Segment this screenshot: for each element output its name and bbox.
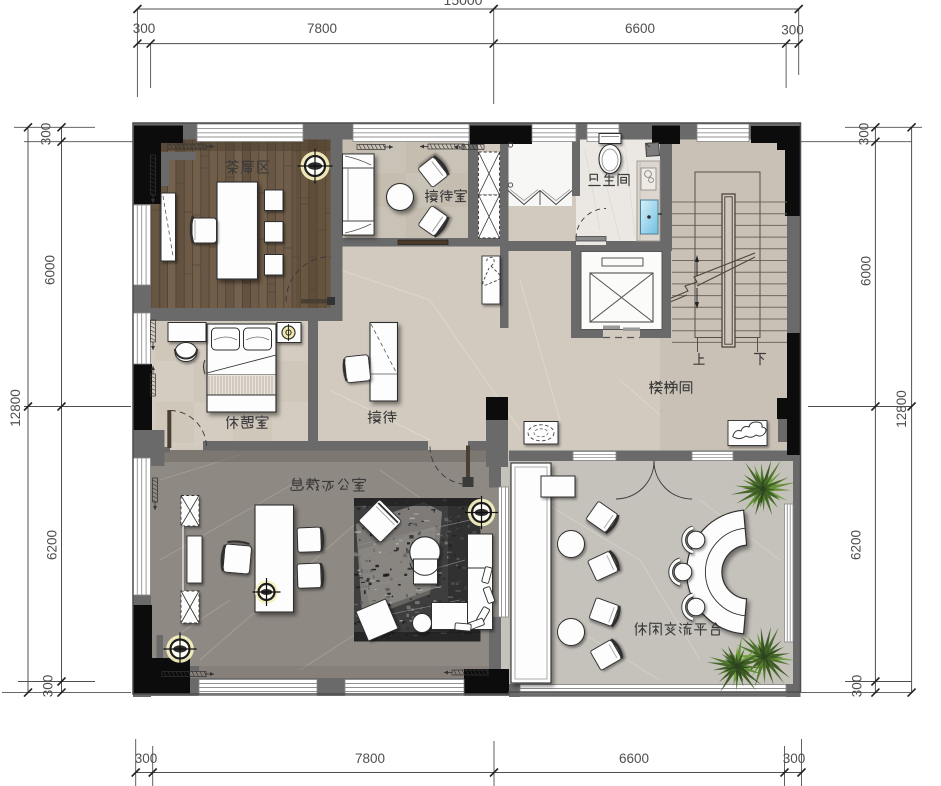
svg-text:6600: 6600 bbox=[619, 751, 649, 766]
svg-text:7800: 7800 bbox=[307, 21, 337, 36]
svg-text:6200: 6200 bbox=[849, 530, 864, 560]
svg-text:6200: 6200 bbox=[45, 530, 60, 560]
svg-text:6000: 6000 bbox=[43, 255, 58, 285]
svg-text:12800: 12800 bbox=[894, 390, 909, 428]
svg-text:300: 300 bbox=[850, 675, 865, 698]
svg-text:300: 300 bbox=[133, 21, 156, 36]
svg-text:300: 300 bbox=[781, 23, 804, 38]
svg-text:15000: 15000 bbox=[444, 0, 483, 8]
svg-text:7800: 7800 bbox=[355, 751, 385, 766]
svg-text:6600: 6600 bbox=[625, 21, 655, 36]
svg-text:300: 300 bbox=[783, 751, 806, 766]
svg-text:300: 300 bbox=[135, 751, 158, 766]
svg-text:300: 300 bbox=[41, 675, 56, 698]
svg-text:300: 300 bbox=[857, 123, 872, 146]
svg-text:300: 300 bbox=[39, 123, 54, 146]
svg-text:12800: 12800 bbox=[8, 389, 23, 427]
svg-text:6000: 6000 bbox=[859, 256, 874, 286]
